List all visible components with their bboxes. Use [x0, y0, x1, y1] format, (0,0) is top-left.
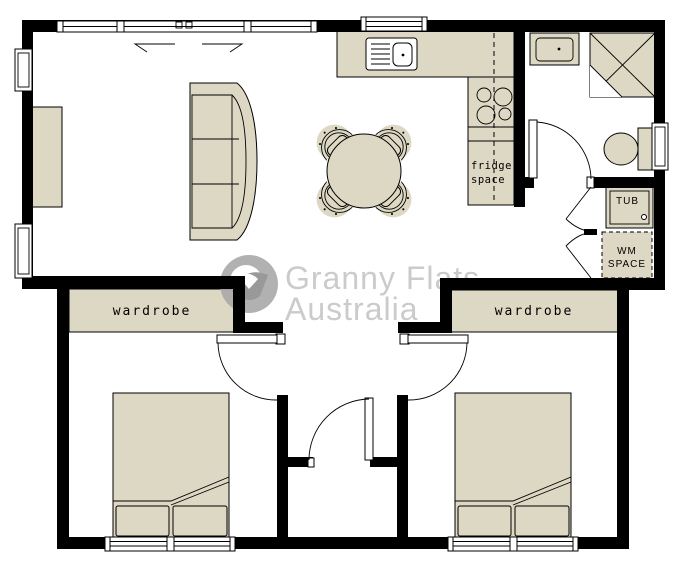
floor-plan-drawing: Granny Flats Australia [0, 0, 684, 570]
bedroom2-window [448, 537, 578, 551]
vanity-basin [530, 33, 579, 65]
wall-lower-right [617, 288, 629, 549]
kitchen-sink [366, 38, 417, 70]
floor-plan-page: Granny Flats Australia [0, 0, 684, 570]
tub-label: TUB [616, 196, 639, 207]
fridge-space-label-line2: space [471, 174, 505, 186]
wall-lower-left [57, 276, 69, 549]
kitchen-counter [337, 31, 514, 77]
watermark-brand-line2: Australia [285, 291, 419, 327]
wall-storage-right [370, 457, 408, 467]
left-window-lower [15, 224, 32, 278]
dining-set [309, 117, 419, 225]
wall-bathroom-bottom [590, 177, 665, 188]
dining-table [327, 134, 401, 208]
left-window-upper [15, 49, 32, 91]
bathroom-door [529, 120, 594, 188]
window-swing-mark [135, 44, 175, 52]
fridge-space-label-line1: fridge [471, 160, 512, 172]
toilet [604, 128, 656, 170]
bedroom2-door [400, 334, 468, 400]
wardrobe-right-label: wardrobe [495, 304, 574, 319]
toilet-window [652, 123, 668, 170]
living-window [57, 21, 317, 52]
kitchen-window [361, 17, 427, 31]
wall-kitchen-bathroom [514, 20, 525, 207]
wm-space-label-line2: SPACE [608, 259, 646, 270]
bed-right [455, 393, 571, 538]
tv-unit [32, 107, 62, 207]
laundry-door-post [584, 229, 597, 235]
storage-door [308, 398, 373, 467]
window-swing-mark [202, 44, 242, 52]
wall-bath-door-stub [525, 177, 534, 188]
wall-bedroom2-hall [397, 395, 408, 540]
pillow [116, 506, 169, 536]
wardrobe-left-label: wardrobe [113, 304, 192, 319]
wall-bedroom1-hall [277, 395, 288, 540]
bathroom [530, 33, 656, 170]
wall-bedroom2-top [440, 278, 665, 290]
wall-hall-right-horizontal [398, 322, 452, 333]
pillow [515, 506, 569, 536]
bedroom1-window [105, 537, 235, 551]
wall-hall-left-horizontal [233, 322, 283, 333]
bed-left [113, 393, 229, 538]
laundry-tub [606, 187, 653, 228]
bedroom1-door [217, 334, 285, 400]
wm-space-label-line1: WM [617, 246, 637, 257]
corner-shower [590, 33, 655, 97]
pillow [173, 506, 227, 536]
sofa [190, 83, 257, 240]
pillow [458, 506, 511, 536]
wall-living-bottom [22, 276, 243, 289]
